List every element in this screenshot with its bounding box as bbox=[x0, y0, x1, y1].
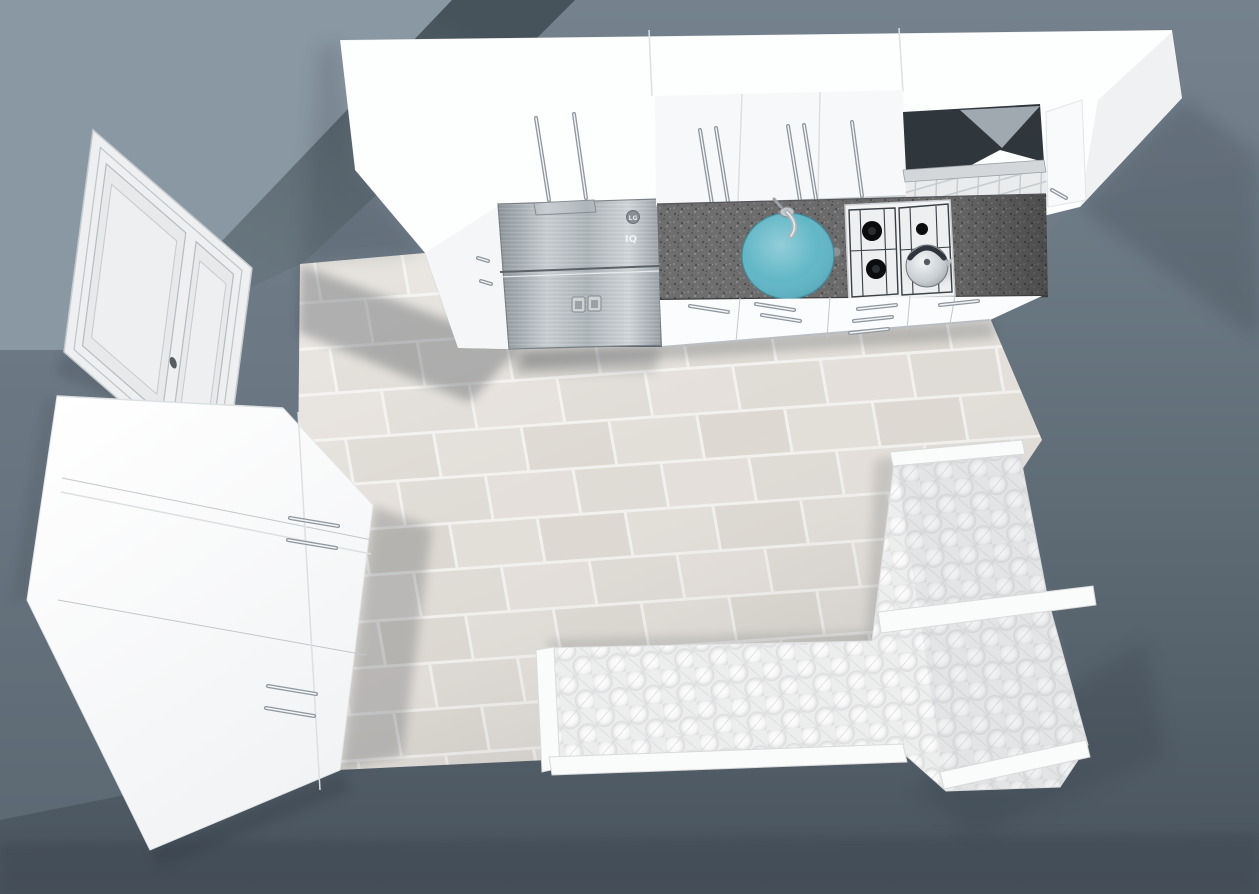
gas-hob-4-burner[interactable] bbox=[845, 200, 955, 301]
shadow-under-fridge bbox=[510, 348, 660, 374]
right-upper-cabinet[interactable] bbox=[1046, 100, 1086, 207]
sink-water-sheen bbox=[742, 213, 834, 299]
stainless-refrigerator[interactable]: LG IQ bbox=[498, 199, 661, 349]
fridge-dispenser-slot-left bbox=[575, 301, 582, 309]
white-upper-cabinets[interactable] bbox=[655, 90, 906, 206]
kitchen-3d-render: LG IQ bbox=[0, 0, 1259, 894]
burner-small bbox=[916, 223, 928, 235]
kettle-lid-knob bbox=[924, 259, 930, 265]
burner-large-2-cap bbox=[872, 265, 880, 273]
fridge-mark-text: IQ bbox=[625, 234, 637, 245]
fridge-top-handle[interactable] bbox=[534, 200, 596, 215]
upper-doors-block[interactable] bbox=[655, 90, 906, 206]
kettle-body[interactable] bbox=[906, 245, 948, 287]
burner-large-1-cap bbox=[868, 227, 876, 235]
fridge-dispenser-slot-right bbox=[591, 300, 598, 308]
fridge-brand-text: LG bbox=[629, 215, 638, 222]
